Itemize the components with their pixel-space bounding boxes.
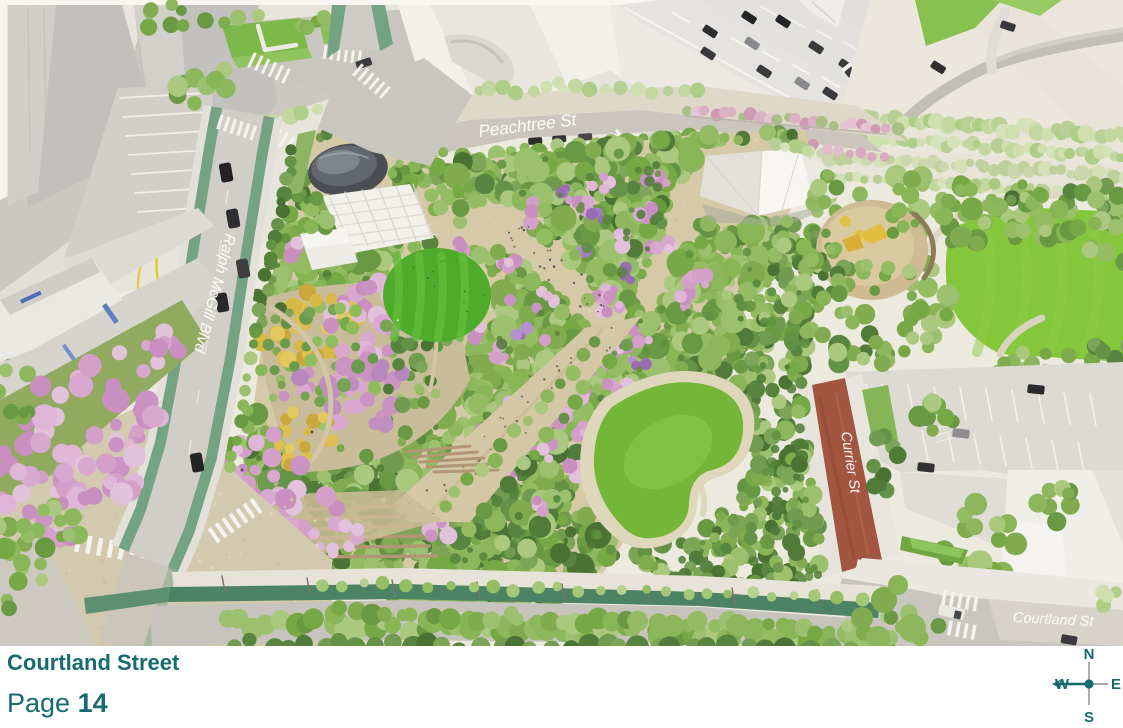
svg-text:W: W [1055, 676, 1070, 693]
svg-text:S: S [1084, 709, 1094, 726]
svg-text:E: E [1111, 676, 1121, 693]
svg-text:N: N [1084, 646, 1095, 663]
